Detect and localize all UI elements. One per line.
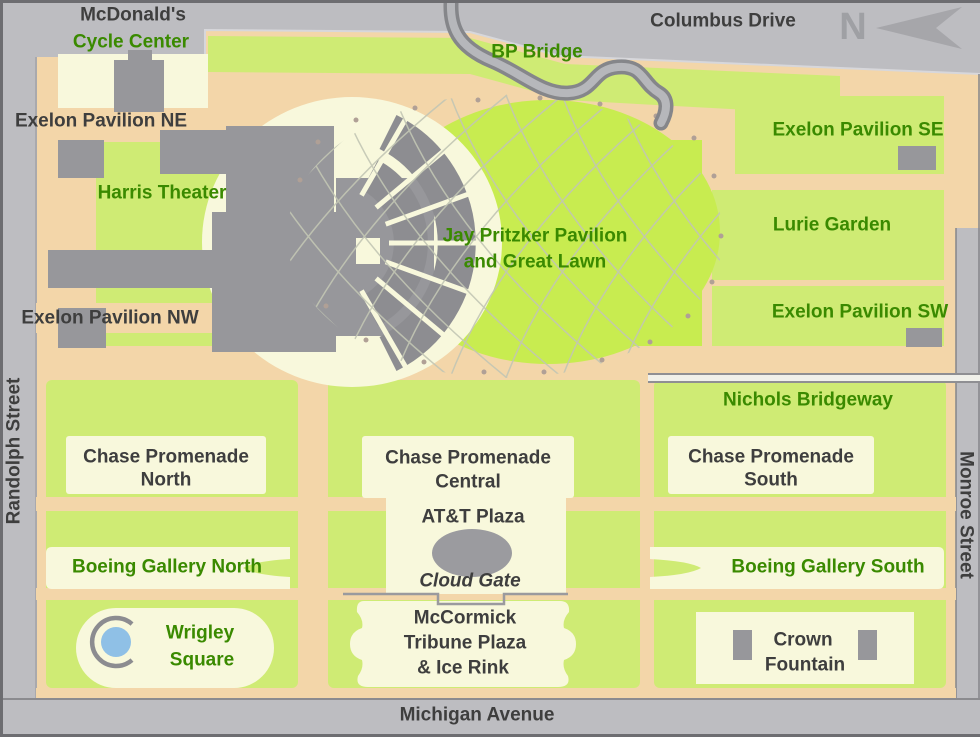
harris-theater-label: Harris Theater xyxy=(98,184,227,203)
monroe-street-label: Monroe Street xyxy=(957,451,976,579)
att-plaza-label: AT&T Plaza xyxy=(421,508,524,527)
pritzker-label-line1: Jay Pritzker Pavilion xyxy=(443,227,628,246)
chase-south-label-line2: South xyxy=(744,471,798,490)
crown-label-line1: Crown xyxy=(773,631,832,650)
compass-n-label: N xyxy=(839,8,866,46)
exelon-se-building xyxy=(898,146,936,170)
exelon-ne-building xyxy=(58,140,104,178)
lurie-garden-label: Lurie Garden xyxy=(773,216,891,235)
mcdonalds-label: McDonald's xyxy=(80,6,186,25)
exelon-ne-label: Exelon Pavilion NE xyxy=(15,112,187,131)
cloud-gate-label: Cloud Gate xyxy=(419,572,520,591)
exelon-sw-building xyxy=(906,328,942,347)
exelon-sw-label: Exelon Pavilion SW xyxy=(772,303,948,322)
bp-bridge-label: BP Bridge xyxy=(491,43,583,62)
mccormick-label-line2: Tribune Plaza xyxy=(404,634,526,653)
nichols-bridgeway-line xyxy=(648,374,980,382)
exelon-nw-label: Exelon Pavilion NW xyxy=(21,309,198,328)
boeing-north-label: Boeing Gallery North xyxy=(72,558,262,577)
wrigley-label-line1: Wrigley xyxy=(166,624,234,643)
cycle-center-building xyxy=(114,60,164,112)
exelon-se-label: Exelon Pavilion SE xyxy=(772,121,943,140)
pritzker-label-line2: and Great Lawn xyxy=(464,253,607,272)
chase-north-label-line1: Chase Promenade xyxy=(83,448,249,467)
chase-central-label-line2: Central xyxy=(435,473,500,492)
cycle-center-label: Cycle Center xyxy=(73,33,189,52)
boeing-south-label: Boeing Gallery South xyxy=(731,558,924,577)
nichols-bridgeway-label: Nichols Bridgeway xyxy=(723,391,893,410)
randolph-street-label: Randolph Street xyxy=(5,378,24,525)
fountain-pool xyxy=(101,627,131,657)
crown-label-line2: Fountain xyxy=(765,656,845,675)
chase-north-label-line2: North xyxy=(141,471,192,490)
millennium-park-map: McDonald's Cycle Center BP Bridge Columb… xyxy=(0,0,980,737)
chase-south-label-line1: Chase Promenade xyxy=(688,448,854,467)
mccormick-label-line1: McCormick xyxy=(414,609,516,628)
columbus-drive-label: Columbus Drive xyxy=(650,12,796,31)
wrigley-label-line2: Square xyxy=(170,651,234,670)
harris-theater-building xyxy=(48,250,222,288)
chase-central-label-line1: Chase Promenade xyxy=(385,449,551,468)
mccormick-label-line3: & Ice Rink xyxy=(417,659,509,678)
michigan-avenue-label: Michigan Avenue xyxy=(400,706,555,725)
